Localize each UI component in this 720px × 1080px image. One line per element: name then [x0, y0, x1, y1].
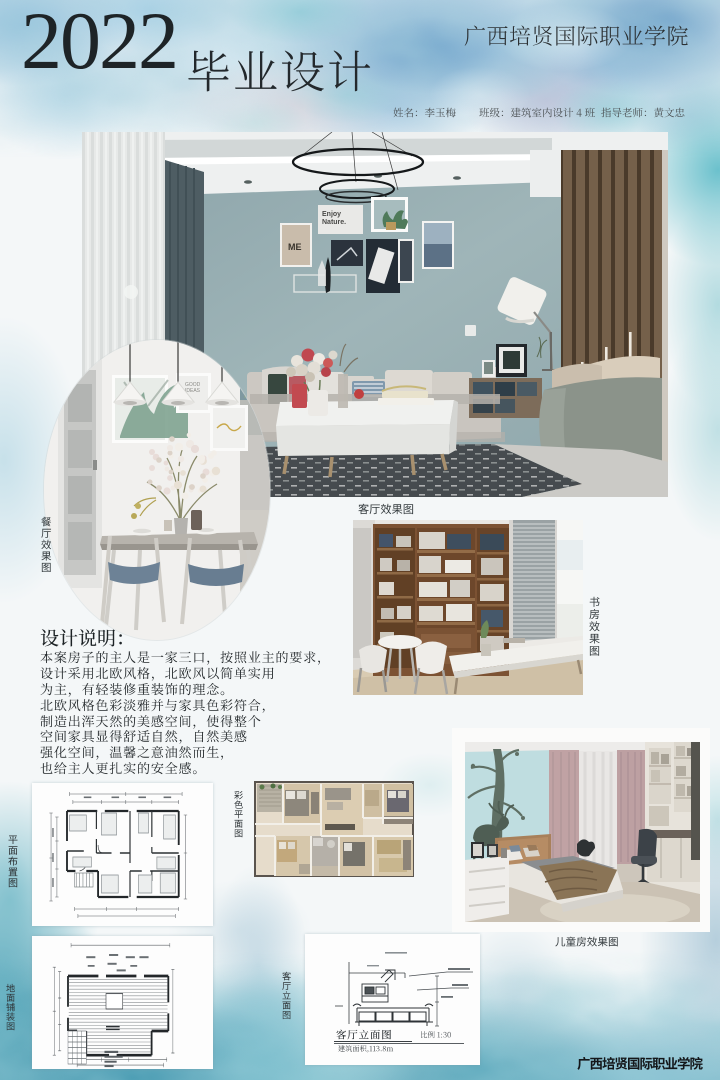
svg-text:Nature.: Nature.: [322, 219, 346, 226]
svg-text:Enjoy: Enjoy: [322, 211, 341, 218]
svg-text:ME: ME: [288, 242, 302, 252]
